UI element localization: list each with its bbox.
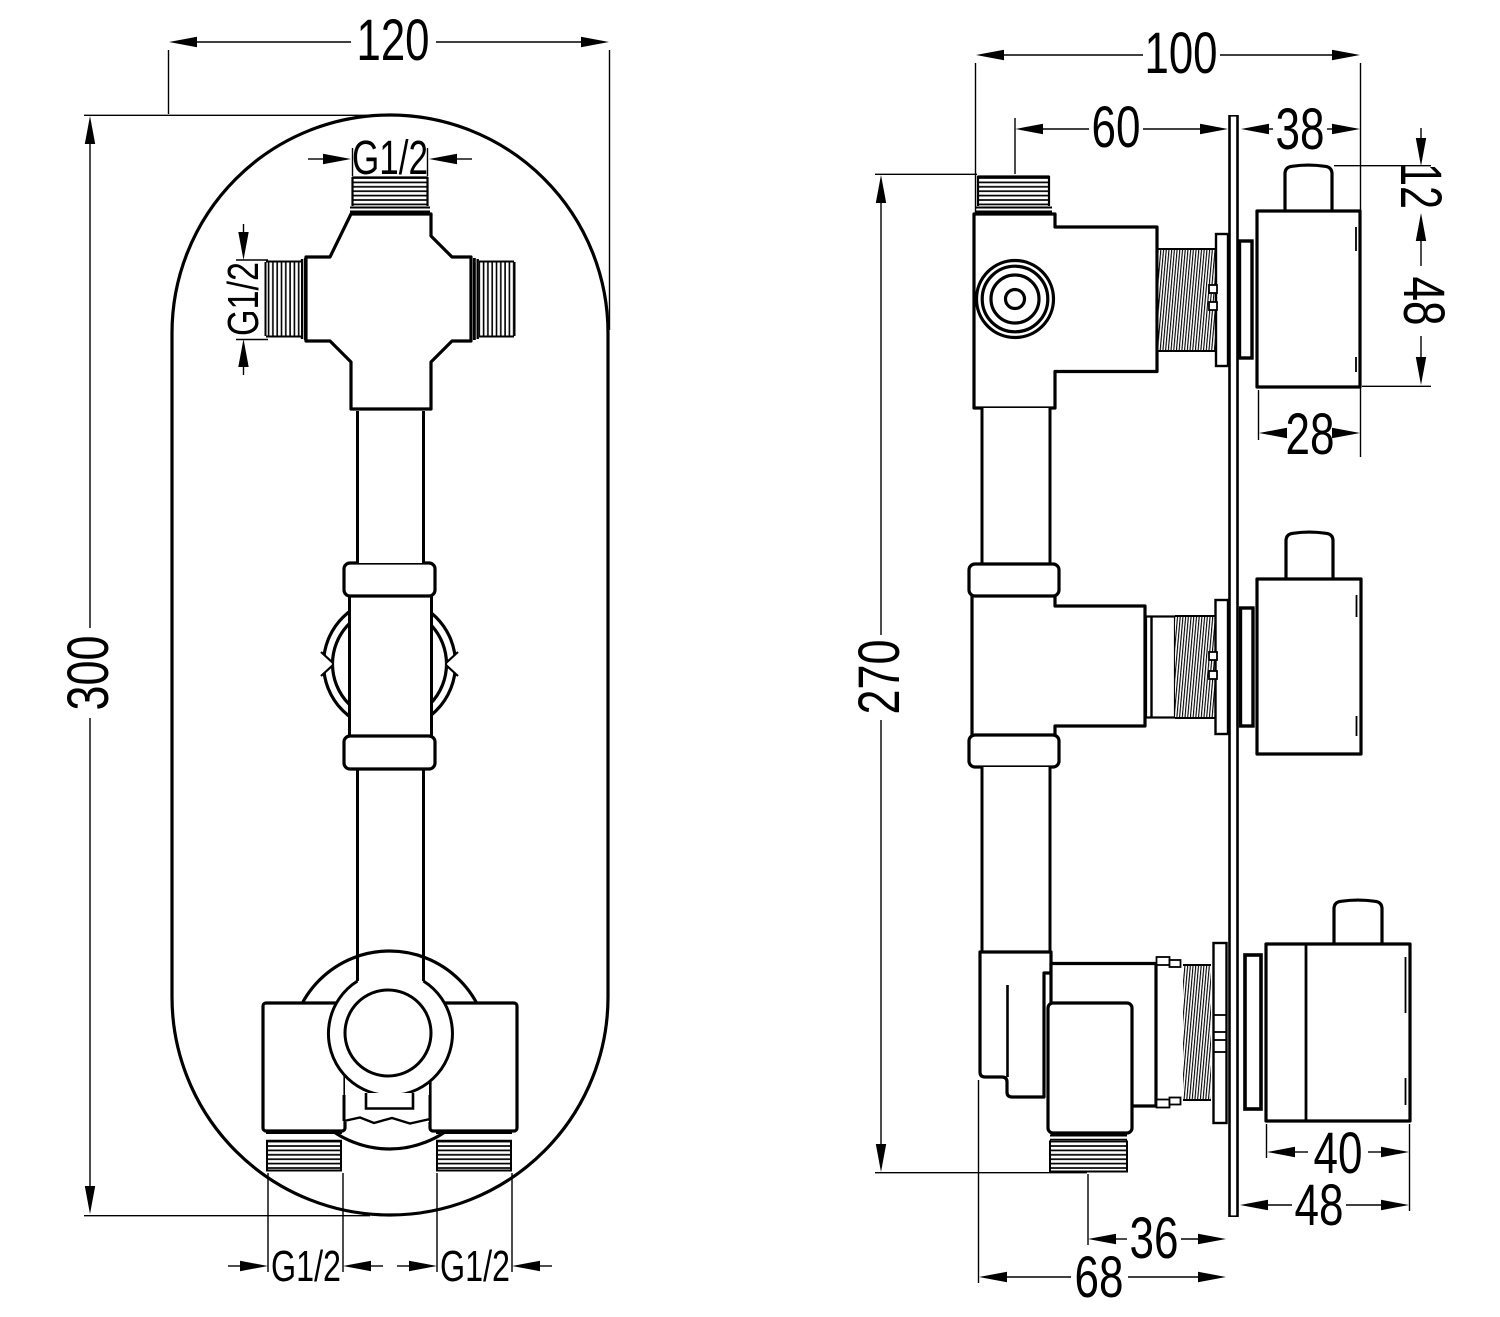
svg-text:60: 60 [1092,95,1141,160]
svg-text:G1/2: G1/2 [271,1242,341,1291]
svg-text:G1/2: G1/2 [440,1242,510,1291]
svg-text:38: 38 [1276,97,1325,162]
svg-text:G1/2: G1/2 [219,262,268,336]
svg-text:48: 48 [1295,1173,1344,1238]
svg-text:300: 300 [56,636,121,711]
svg-text:G1/2: G1/2 [352,132,428,185]
svg-text:48: 48 [1391,277,1456,326]
svg-text:28: 28 [1286,402,1335,467]
svg-text:120: 120 [357,8,430,73]
svg-text:100: 100 [1145,21,1218,86]
svg-text:270: 270 [847,640,912,715]
svg-text:12: 12 [1388,163,1453,209]
svg-text:68: 68 [1075,1245,1124,1310]
svg-text:36: 36 [1130,1206,1179,1271]
